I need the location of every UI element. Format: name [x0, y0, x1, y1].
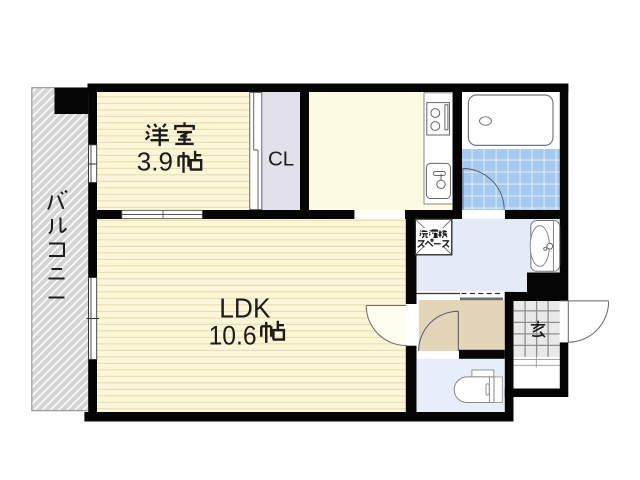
svg-text:CL: CL: [268, 147, 294, 170]
svg-text:10.6: 10.6: [209, 321, 257, 351]
svg-text:LDK: LDK: [219, 293, 271, 324]
svg-text:3.9: 3.9: [137, 147, 173, 177]
